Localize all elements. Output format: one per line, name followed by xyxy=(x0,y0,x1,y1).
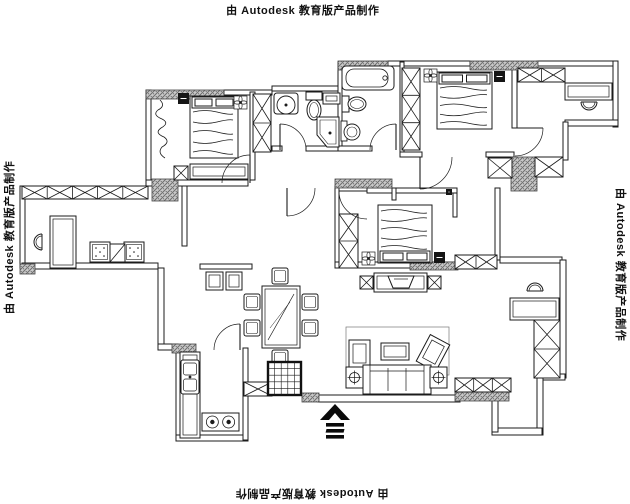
x-box xyxy=(174,166,188,180)
armchair-cube-icons xyxy=(90,242,144,262)
cabinet xyxy=(381,343,409,360)
stove-icon xyxy=(202,413,239,431)
nightstand-icon xyxy=(178,93,189,104)
sink-icon xyxy=(341,121,360,141)
dining-chair-icon xyxy=(272,268,288,284)
dining-chair-icon xyxy=(302,294,318,310)
dining-set xyxy=(244,268,318,366)
cabinet xyxy=(226,272,242,290)
shoe-cabinet-icon xyxy=(268,362,301,395)
chair-icon xyxy=(527,283,543,291)
floor-plan-drawing xyxy=(0,0,630,504)
dining-chair-icon xyxy=(244,294,260,310)
door-swing xyxy=(515,128,543,156)
cabinet xyxy=(565,83,612,100)
bed xyxy=(190,96,238,158)
cabinet xyxy=(190,164,248,179)
kitchen-sink-icon xyxy=(181,360,199,394)
x-box xyxy=(428,276,441,289)
bathtub-icon xyxy=(342,66,394,90)
north-arrow xyxy=(320,404,350,439)
curtain-icon xyxy=(156,100,167,158)
dining-chair-icon xyxy=(244,320,260,336)
nightstand-icon xyxy=(434,252,445,263)
sink-icon xyxy=(274,93,298,114)
cabinet xyxy=(323,93,340,104)
door-swing xyxy=(370,124,396,150)
toilet-icon xyxy=(342,96,366,112)
bed xyxy=(378,205,432,263)
cabinet xyxy=(510,298,559,320)
chair-icon xyxy=(581,102,597,110)
floorplan-page: 由 Autodesk 教育版产品制作 由 Autodesk 教育版产品制作 由 … xyxy=(0,0,630,504)
cabinet xyxy=(50,216,76,268)
chair-icon xyxy=(34,234,42,250)
bed xyxy=(437,72,492,129)
door-swing xyxy=(280,124,306,150)
toilet-icon xyxy=(306,92,322,120)
door-swing xyxy=(214,324,240,350)
flower-icon xyxy=(424,69,437,82)
nightstand-icon xyxy=(494,71,505,82)
cabinet xyxy=(206,272,223,290)
x-box xyxy=(360,276,373,289)
door-swing xyxy=(420,157,452,189)
flower-icon xyxy=(234,96,247,109)
dining-chair-icon xyxy=(302,320,318,336)
nightstand-icon xyxy=(446,189,452,195)
armchair-icon xyxy=(90,242,110,262)
tv-icon xyxy=(388,276,414,288)
side-table-icon xyxy=(110,244,125,262)
door-swing xyxy=(287,188,315,216)
shower-icon xyxy=(317,117,339,147)
flower-icon xyxy=(362,252,375,265)
armchair-icon xyxy=(124,242,144,262)
